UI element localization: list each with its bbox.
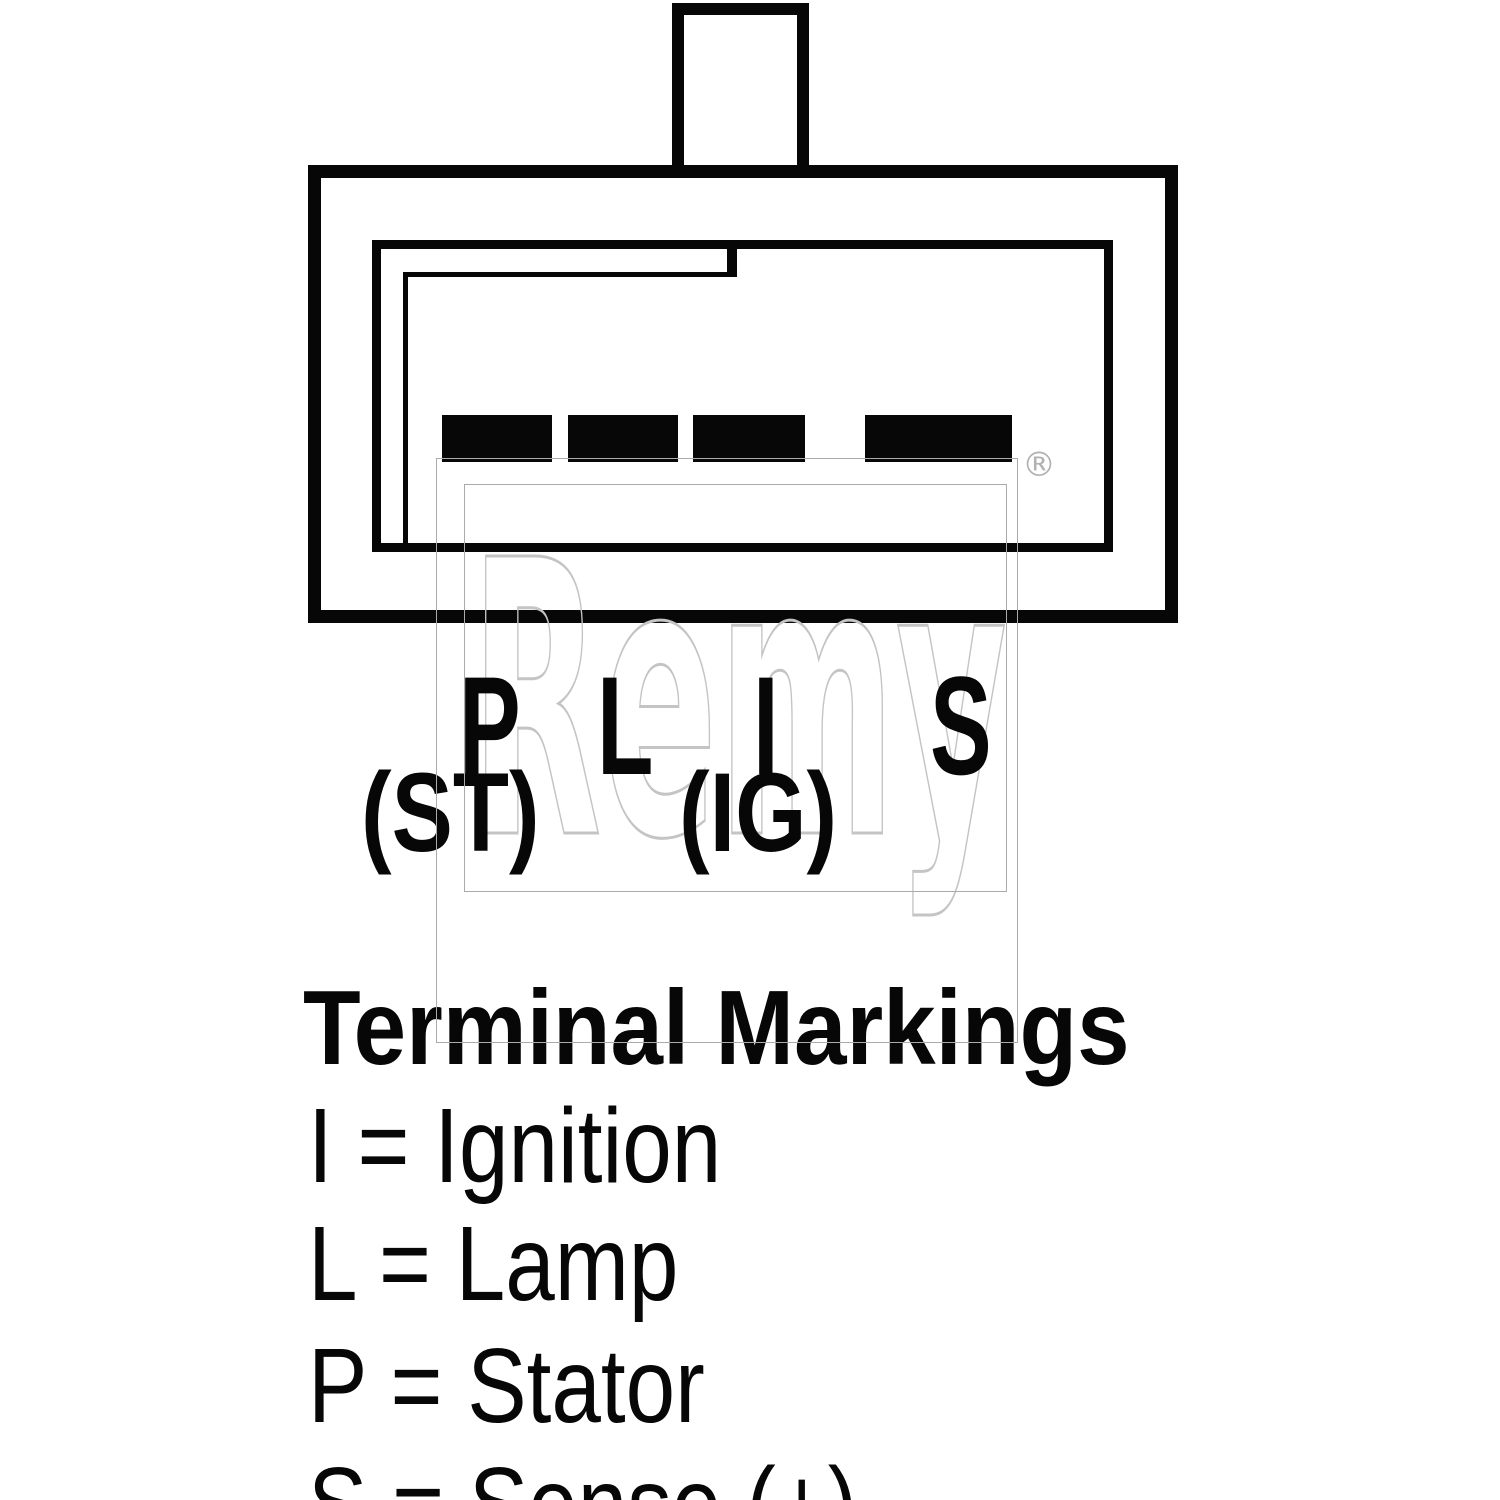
legend-entry-stator: P = Stator: [308, 1333, 705, 1439]
legend-entry-sense: S = Sense (+): [308, 1452, 857, 1500]
legend-entry-lamp: L = Lamp: [308, 1211, 678, 1317]
terminal-pin-s: [865, 415, 1012, 462]
terminal-pin-p: [442, 415, 552, 462]
connector-top-tab: [672, 3, 809, 175]
legend-entry-ignition: I = Ignition: [308, 1093, 721, 1199]
connector-keyway-line-step: [727, 249, 737, 277]
terminal-markings-diagram: Remy ® P L I S (ST) (IG) Terminal Markin…: [0, 0, 1500, 1500]
terminal-pin-i: [693, 415, 805, 462]
connector-keyway-line-left: [403, 272, 408, 544]
connector-keyway-line-horizontal: [403, 272, 737, 277]
registered-trademark-icon: ®: [1022, 448, 1056, 482]
watermark-frame-inner: [464, 484, 1007, 892]
terminal-pin-l: [568, 415, 678, 462]
